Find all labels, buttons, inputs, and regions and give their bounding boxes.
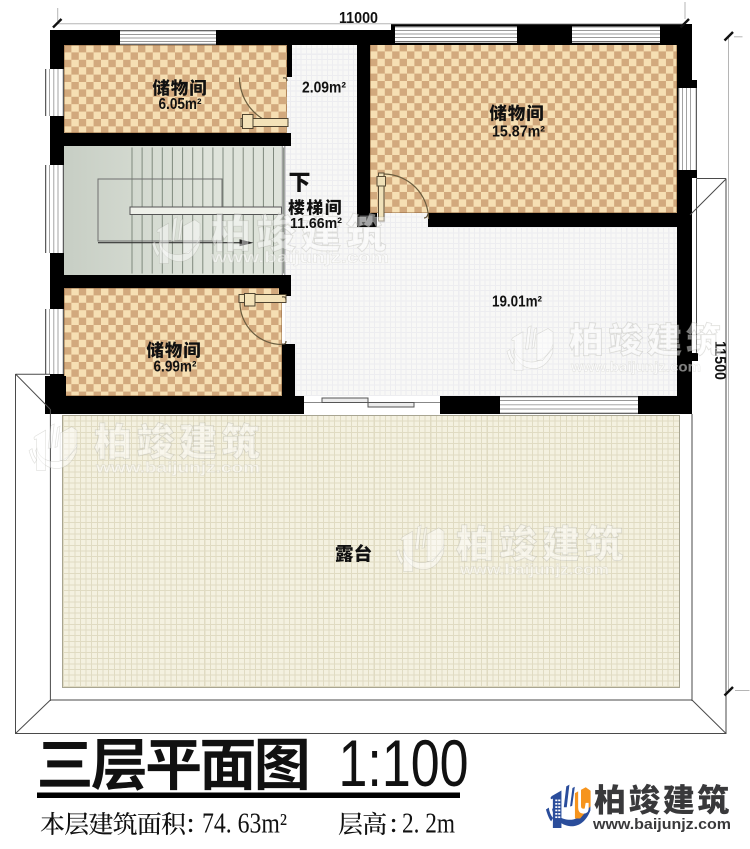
svg-text:www.baijunjz.com: www.baijunjz.com	[592, 817, 731, 833]
svg-text:www.baijunjz.com: www.baijunjz.com	[570, 359, 701, 375]
svg-text:2.09m²: 2.09m²	[302, 80, 346, 97]
svg-text:74. 63m²: 74. 63m²	[202, 809, 287, 840]
svg-text:11.66m²: 11.66m²	[290, 215, 342, 232]
svg-text:6.99m²: 6.99m²	[154, 359, 197, 376]
svg-text:19.01m²: 19.01m²	[492, 294, 542, 311]
svg-text:www.baijunjz.com: www.baijunjz.com	[210, 250, 389, 267]
svg-text:11000: 11000	[339, 10, 378, 27]
svg-text:www.baijunjz.com: www.baijunjz.com	[95, 460, 260, 477]
svg-text:2. 2m: 2. 2m	[402, 809, 455, 840]
svg-text:www.baijunjz.com: www.baijunjz.com	[459, 563, 609, 579]
svg-text:1:100: 1:100	[339, 726, 469, 800]
svg-text:15.87m²: 15.87m²	[492, 124, 545, 141]
svg-text:6.05m²: 6.05m²	[159, 96, 202, 113]
